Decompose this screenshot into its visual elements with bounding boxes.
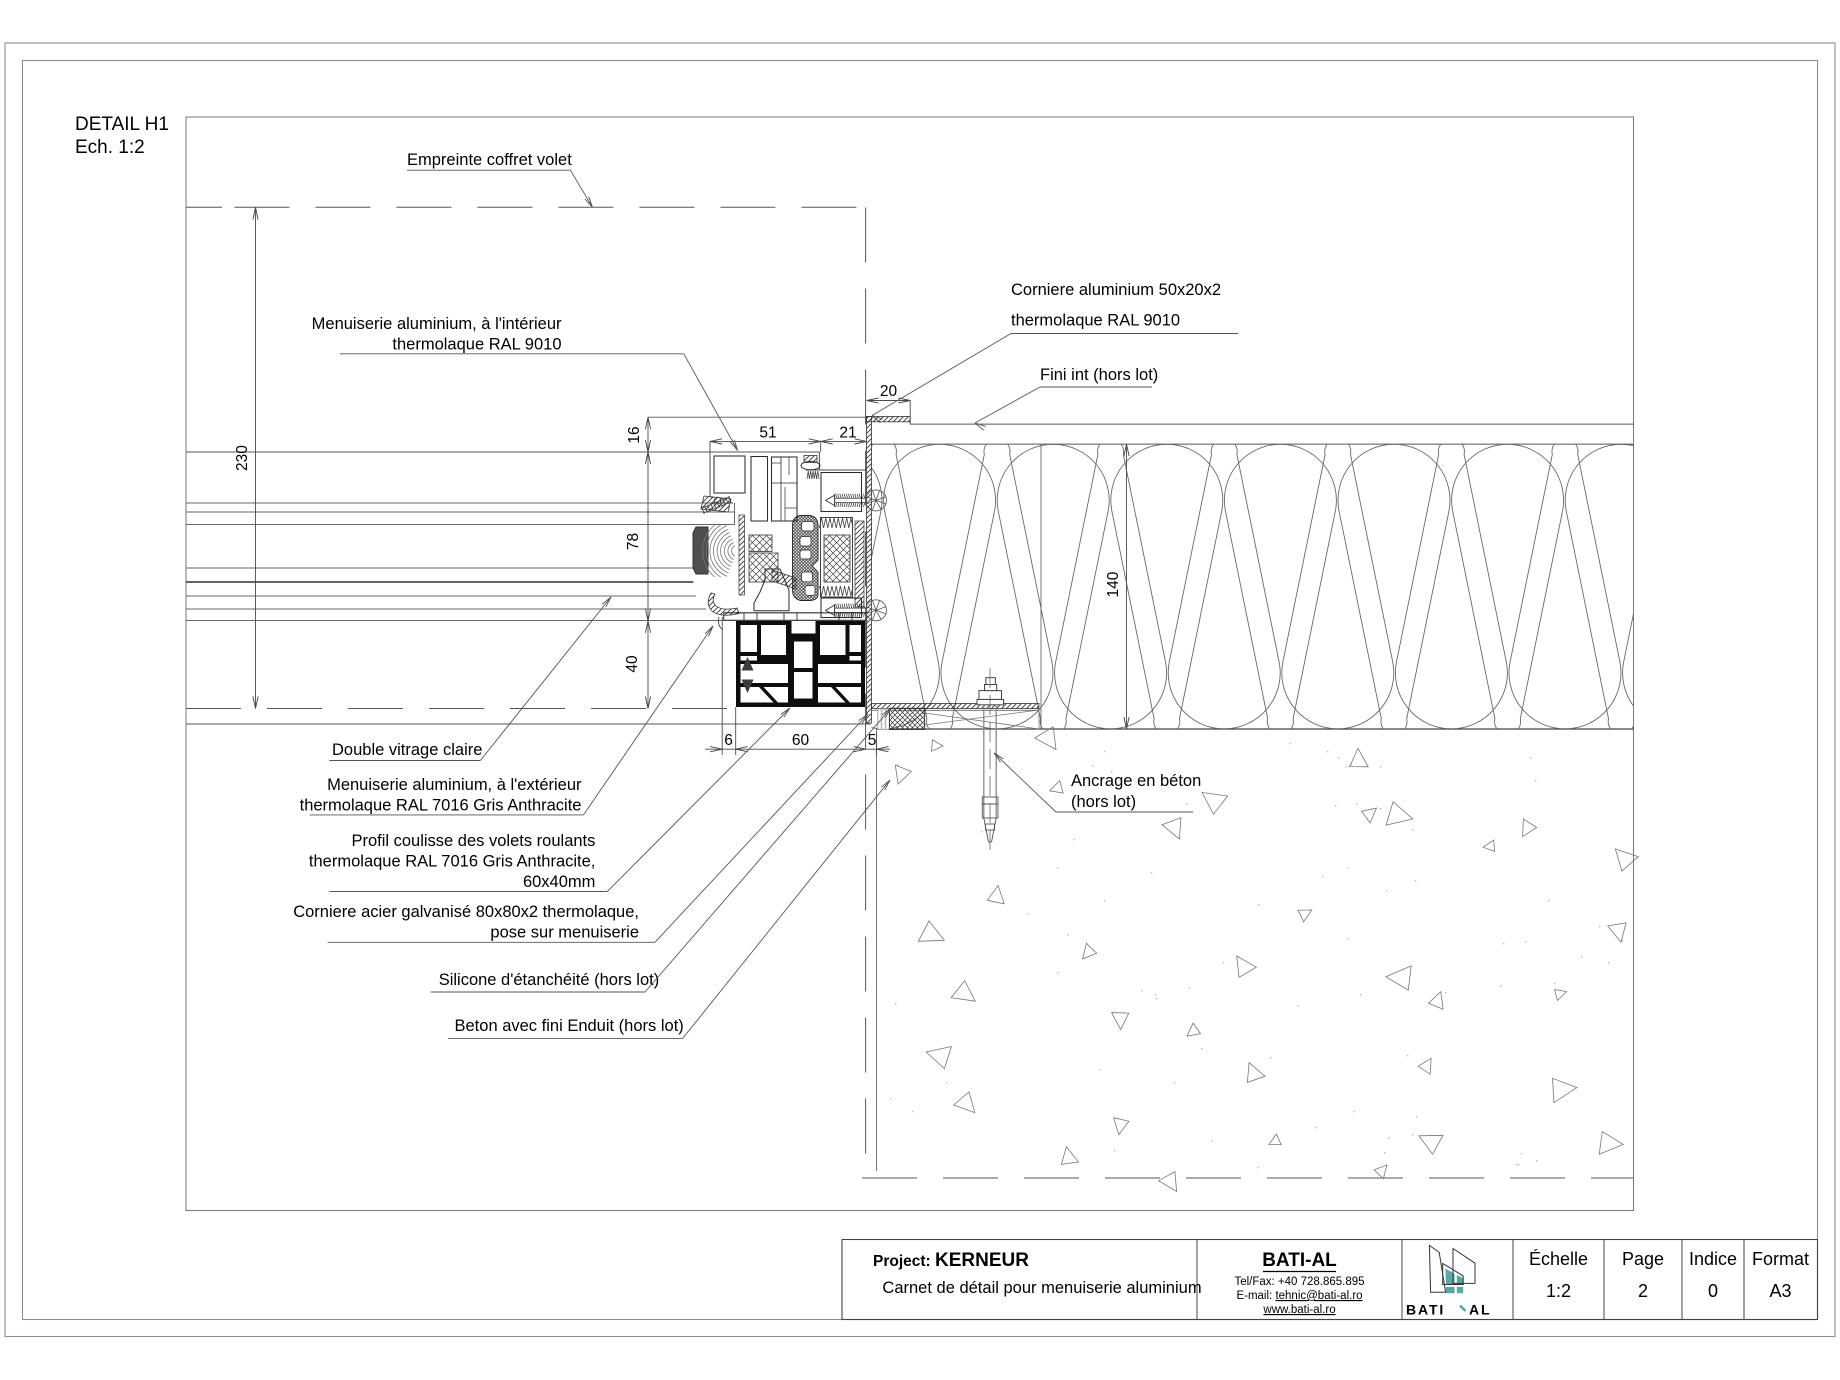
- svg-text:Beton avec fini Enduit (hors l: Beton avec fini Enduit (hors lot): [455, 1017, 684, 1035]
- svg-text:60x40mm: 60x40mm: [523, 873, 595, 891]
- svg-text:pose sur menuiserie: pose sur menuiserie: [490, 924, 639, 942]
- svg-text:thermolaque RAL 9010: thermolaque RAL 9010: [1011, 312, 1180, 330]
- svg-text:BATI-AL: BATI-AL: [1262, 1250, 1337, 1271]
- svg-text:A3: A3: [1769, 1281, 1791, 1301]
- svg-text:Indice: Indice: [1689, 1249, 1737, 1269]
- svg-text:6: 6: [724, 732, 733, 749]
- svg-text:51: 51: [759, 425, 776, 442]
- svg-text:Fini int (hors lot): Fini int (hors lot): [1040, 366, 1158, 384]
- svg-text:Corniere aluminium 50x20x2: Corniere aluminium 50x20x2: [1011, 281, 1221, 299]
- svg-text:DETAIL H1: DETAIL H1: [75, 114, 169, 135]
- svg-text:Silicone d'étanchéité (hors lo: Silicone d'étanchéité (hors lot): [439, 971, 660, 989]
- svg-text:Corniere acier galvanisé 80x80: Corniere acier galvanisé 80x80x2 thermol…: [293, 903, 639, 921]
- svg-text:Menuiserie aluminium, à l'exté: Menuiserie aluminium, à l'extérieur: [327, 776, 582, 794]
- svg-text:Menuiserie aluminium, à l'inté: Menuiserie aluminium, à l'intérieur: [312, 315, 562, 333]
- svg-text:2: 2: [1638, 1281, 1648, 1301]
- svg-text:Carnet de détail pour menuiser: Carnet de détail pour menuiserie alumini…: [882, 1279, 1201, 1297]
- svg-text:Profil coulisse des volets rou: Profil coulisse des volets roulants: [351, 832, 595, 850]
- svg-text:Format: Format: [1752, 1249, 1809, 1269]
- svg-text:Échelle: Échelle: [1529, 1249, 1588, 1269]
- svg-text:Double vitrage claire: Double vitrage claire: [332, 741, 482, 759]
- svg-text:78: 78: [625, 533, 642, 550]
- svg-text:0: 0: [1708, 1281, 1718, 1301]
- svg-text:Ancrage en béton: Ancrage en béton: [1071, 772, 1201, 790]
- svg-text:140: 140: [1105, 571, 1122, 597]
- svg-text:E-mail: tehnic@bati-al.ro: E-mail: tehnic@bati-al.ro: [1236, 1290, 1362, 1302]
- svg-text:(hors lot): (hors lot): [1071, 793, 1136, 811]
- svg-text:5: 5: [868, 732, 877, 749]
- svg-text:www.bati-al.ro: www.bati-al.ro: [1262, 1304, 1335, 1316]
- svg-text:Tel/Fax: +40 728.865.895: Tel/Fax: +40 728.865.895: [1234, 1276, 1364, 1288]
- svg-text:Project: KERNEUR: Project: KERNEUR: [873, 1250, 1029, 1271]
- svg-text:Ech. 1:2: Ech. 1:2: [75, 137, 145, 158]
- svg-text:thermolaque RAL 7016 Gris Anth: thermolaque RAL 7016 Gris Anthracite,: [309, 853, 595, 871]
- svg-text:thermolaque RAL 7016 Gris Anth: thermolaque RAL 7016 Gris Anthracite: [300, 797, 582, 815]
- svg-text:1:2: 1:2: [1546, 1281, 1571, 1301]
- svg-text:21: 21: [839, 425, 856, 442]
- svg-text:BATI: BATI: [1406, 1302, 1445, 1318]
- svg-text:230: 230: [234, 445, 251, 471]
- svg-text:16: 16: [626, 426, 643, 443]
- svg-text:20: 20: [880, 383, 898, 400]
- svg-text:Empreinte coffret volet: Empreinte coffret volet: [407, 151, 572, 169]
- svg-text:Page: Page: [1622, 1249, 1664, 1269]
- svg-text:60: 60: [792, 732, 810, 749]
- svg-text:thermolaque RAL 9010: thermolaque RAL 9010: [392, 336, 561, 354]
- svg-text:AL: AL: [1469, 1302, 1491, 1318]
- svg-text:40: 40: [624, 655, 641, 673]
